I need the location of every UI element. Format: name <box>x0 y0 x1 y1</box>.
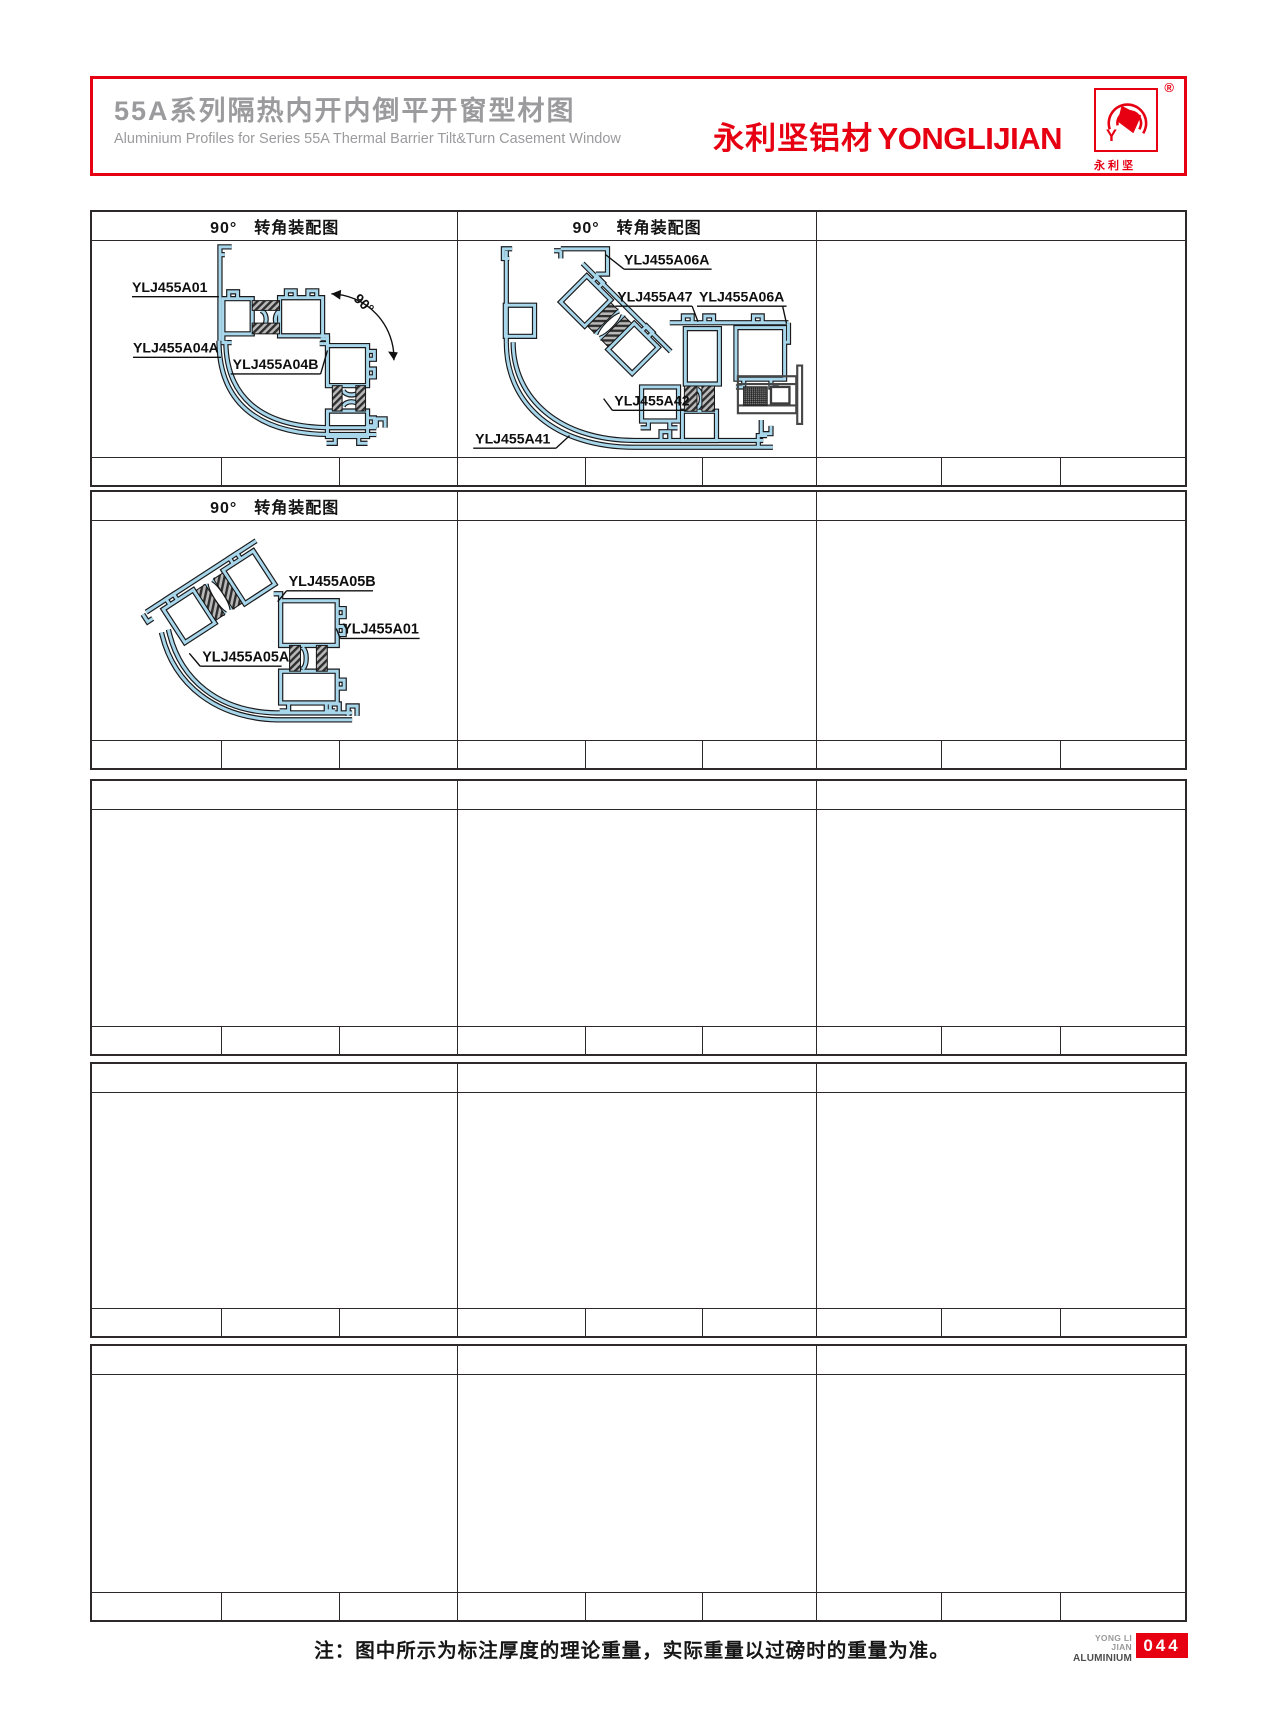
block4-header-row <box>92 1064 1185 1093</box>
spec-cell <box>942 1309 1060 1336</box>
spec-cell <box>1061 741 1185 768</box>
spec-cell <box>817 1309 942 1336</box>
footer-brand-line2: ALUMINIUM <box>1072 1653 1132 1664</box>
spec-cell <box>586 1309 703 1336</box>
block2-drawing-row: YLJ455A05B YLJ455A01 YLJ455A05A <box>92 521 1185 740</box>
logo-emblem: Y <box>1094 88 1158 152</box>
spec-cell <box>586 1027 703 1054</box>
spec-cell <box>458 1027 585 1054</box>
spec-cell <box>222 1027 339 1054</box>
block5-drawing-cell-1 <box>92 1375 458 1592</box>
brand-wordmark: 永利坚铝材 YONGLIJIAN <box>713 113 1062 158</box>
profile-table-block-3 <box>90 779 1187 1056</box>
spec-cell <box>703 458 816 485</box>
spec-cell <box>222 1593 339 1620</box>
spec-cell <box>942 1027 1060 1054</box>
profile-table-block-2: 90° 转角装配图 <box>90 490 1187 770</box>
logo-monogram-icon: Y <box>1096 90 1155 149</box>
block3-header-cell-3 <box>817 781 1185 809</box>
block4-header-cell-2 <box>458 1064 816 1092</box>
block4-spec-row <box>92 1308 1185 1336</box>
block4-drawing-cell-3 <box>817 1093 1185 1308</box>
corner-assembly-drawing-2: YLJ455A06A YLJ455A47 YLJ455A06A <box>458 241 815 457</box>
spec-cell <box>340 1027 458 1054</box>
svg-text:YLJ455A42: YLJ455A42 <box>615 392 690 408</box>
block3-spec-row <box>92 1026 1185 1054</box>
profile-table-block-5 <box>90 1344 1187 1622</box>
svg-text:YLJ455A06A: YLJ455A06A <box>699 288 784 304</box>
spec-cell <box>340 458 458 485</box>
profile-table-block-1: 90° 转角装配图 90° 转角装配图 <box>90 210 1187 487</box>
svg-text:90°: 90° <box>350 291 377 318</box>
lock-hardware <box>738 366 802 424</box>
spec-cell <box>458 1309 585 1336</box>
profile-label: YLJ455A04A <box>133 340 221 357</box>
spec-cell <box>1061 1027 1185 1054</box>
spec-cell <box>703 1309 816 1336</box>
svg-text:YLJ455A04A: YLJ455A04A <box>133 340 219 356</box>
svg-text:YLJ455A05A: YLJ455A05A <box>202 649 289 665</box>
block2-header-row: 90° 转角装配图 <box>92 492 1185 521</box>
block3-drawing-cell-1 <box>92 810 458 1026</box>
profile-label: YLJ455A05B <box>278 574 376 602</box>
page-number-badge: 044 <box>1136 1633 1188 1658</box>
spec-cell <box>586 1593 703 1620</box>
spec-cell <box>222 458 339 485</box>
spec-cell <box>458 741 585 768</box>
block5-header-cell-2 <box>458 1346 816 1374</box>
spec-cell <box>817 1593 942 1620</box>
block5-header-row <box>92 1346 1185 1375</box>
svg-text:YLJ455A06A: YLJ455A06A <box>624 251 709 267</box>
spec-cell <box>92 458 222 485</box>
spec-cell <box>92 1309 222 1336</box>
block5-drawing-row <box>92 1375 1185 1592</box>
profile-label: YLJ455A42 <box>604 392 690 410</box>
corner-assembly-drawing-3-cell: YLJ455A05B YLJ455A01 YLJ455A05A <box>92 521 458 740</box>
spec-cell <box>1061 458 1185 485</box>
company-logo: Y ® 永 利 坚 <box>1090 83 1176 175</box>
page-subtitle: Aluminium Profiles for Series 55A Therma… <box>114 131 621 147</box>
block3-drawing-row <box>92 810 1185 1026</box>
profile-label: YLJ455A04B <box>231 350 328 373</box>
block1-header-cell-1: 90° 转角装配图 <box>92 212 458 240</box>
block4-drawing-cell-1 <box>92 1093 458 1308</box>
corner-assembly-drawing-1: 90° YLJ455A01 YLJ455A04A YLJ455A04B <box>92 241 457 457</box>
block1-spec-row <box>92 457 1185 485</box>
block2-header-cell-3 <box>817 492 1185 520</box>
spec-cell <box>1061 1593 1185 1620</box>
block1-drawing-cell-3 <box>817 241 1185 457</box>
block5-header-cell-3 <box>817 1346 1185 1374</box>
block2-drawing-cell-2 <box>458 521 816 740</box>
page-header: 55A系列隔热内开内倒平开窗型材图 Aluminium Profiles for… <box>90 76 1187 176</box>
spec-cell <box>92 1593 222 1620</box>
spec-cell <box>703 741 816 768</box>
corner-assembly-drawing-3: YLJ455A05B YLJ455A01 YLJ455A05A <box>92 521 457 740</box>
page-title: 55A系列隔热内开内倒平开窗型材图 <box>114 89 576 128</box>
spec-cell <box>340 741 458 768</box>
svg-text:YLJ455A01: YLJ455A01 <box>132 280 208 296</box>
spec-cell <box>458 458 585 485</box>
spec-cell <box>817 1027 942 1054</box>
spec-cell <box>340 1593 458 1620</box>
block5-spec-row <box>92 1592 1185 1620</box>
svg-text:YLJ455A01: YLJ455A01 <box>342 621 419 637</box>
weight-disclaimer-note: 注：图中所示为标注厚度的理论重量，实际重量以过磅时的重量为准。 <box>132 1634 1132 1663</box>
corner-assembly-drawing-2-cell: YLJ455A06A YLJ455A47 YLJ455A06A <box>458 241 816 457</box>
svg-text:YLJ455A05B: YLJ455A05B <box>289 574 376 590</box>
spec-cell <box>817 458 942 485</box>
logo-caption: 永 利 坚 <box>1094 157 1158 173</box>
spec-cell <box>703 1593 816 1620</box>
block5-header-cell-1 <box>92 1346 458 1374</box>
brand-name-chinese: 永利坚铝材 <box>713 121 873 156</box>
block3-header-cell-1 <box>92 781 458 809</box>
profile-label: YLJ455A01 <box>336 621 419 638</box>
block1-drawing-row: 90° YLJ455A01 YLJ455A04A YLJ455A04B <box>92 241 1185 457</box>
profile-label: YLJ455A05A <box>189 649 289 666</box>
spec-cell <box>1061 1309 1185 1336</box>
spec-cell <box>817 741 942 768</box>
profile-table-block-4 <box>90 1062 1187 1338</box>
registered-trademark-icon: ® <box>1164 80 1174 95</box>
svg-text:Y: Y <box>1106 126 1117 145</box>
block4-drawing-cell-2 <box>458 1093 816 1308</box>
profile-label: YLJ455A41 <box>474 430 570 448</box>
block1-header-row: 90° 转角装配图 90° 转角装配图 <box>92 212 1185 241</box>
block3-header-cell-2 <box>458 781 816 809</box>
svg-text:YLJ455A47: YLJ455A47 <box>618 288 693 304</box>
block4-header-cell-1 <box>92 1064 458 1092</box>
block2-header-cell-2 <box>458 492 816 520</box>
profile-outline-group <box>143 541 357 720</box>
spec-cell <box>92 741 222 768</box>
block2-spec-row <box>92 740 1185 768</box>
spec-cell <box>586 458 703 485</box>
block4-header-cell-3 <box>817 1064 1185 1092</box>
spec-cell <box>703 1027 816 1054</box>
profile-label: YLJ455A01 <box>132 280 219 297</box>
block1-header-cell-3 <box>817 212 1185 240</box>
footer-brand-mark: YONG LI JIAN ALUMINIUM <box>1072 1634 1132 1664</box>
svg-text:YLJ455A04B: YLJ455A04B <box>233 357 319 373</box>
corner-assembly-drawing-1-cell: 90° YLJ455A01 YLJ455A04A YLJ455A04B <box>92 241 458 457</box>
spec-cell <box>92 1027 222 1054</box>
profile-outline-group <box>219 247 385 443</box>
block2-drawing-cell-3 <box>817 521 1185 740</box>
brand-name-english: YONGLIJIAN <box>878 121 1062 156</box>
spec-cell <box>586 741 703 768</box>
spec-cell <box>942 1593 1060 1620</box>
profile-label: YLJ455A06A <box>606 251 712 269</box>
block1-header-cell-2: 90° 转角装配图 <box>458 212 816 240</box>
profile-outline-group <box>504 249 789 447</box>
spec-cell <box>222 1309 339 1336</box>
block2-header-cell-1: 90° 转角装配图 <box>92 492 458 520</box>
svg-text:YLJ455A41: YLJ455A41 <box>476 430 551 446</box>
spec-cell <box>942 741 1060 768</box>
spec-cell <box>942 458 1060 485</box>
block3-header-row <box>92 781 1185 810</box>
angle-dimension: 90° <box>331 290 397 360</box>
block5-drawing-cell-2 <box>458 1375 816 1592</box>
footer-brand-line1: YONG LI JIAN <box>1072 1634 1132 1653</box>
block5-drawing-cell-3 <box>817 1375 1185 1592</box>
block3-drawing-cell-3 <box>817 810 1185 1026</box>
spec-cell <box>340 1309 458 1336</box>
block4-drawing-row <box>92 1093 1185 1308</box>
block3-drawing-cell-2 <box>458 810 816 1026</box>
spec-cell <box>458 1593 585 1620</box>
spec-cell <box>222 741 339 768</box>
